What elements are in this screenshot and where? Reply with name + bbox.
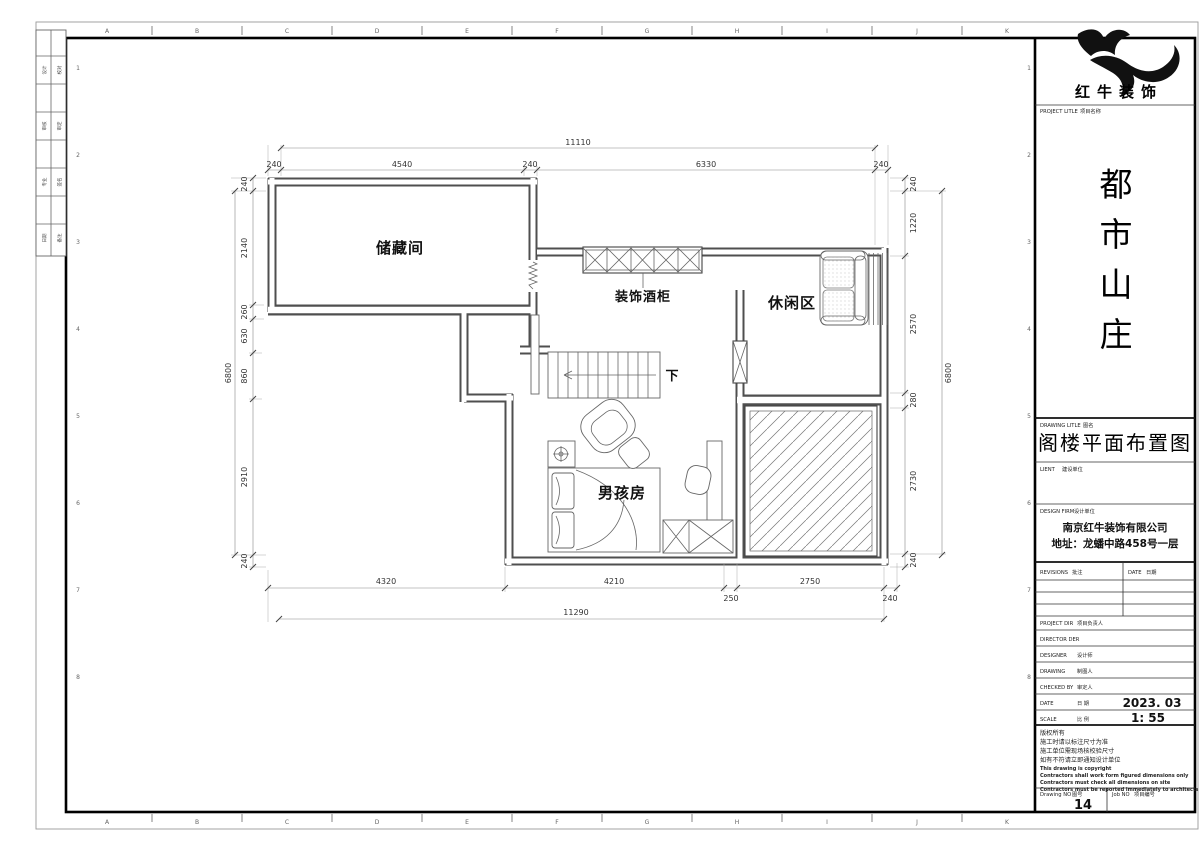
dim-label: 630 xyxy=(240,328,249,343)
note-line: Contractors must check all dimensions on… xyxy=(1040,780,1171,786)
dim-label: 280 xyxy=(909,392,918,407)
job-no-label-en: Job NO xyxy=(1111,792,1130,798)
ruler-letter: F xyxy=(555,819,559,826)
ruler-letter: J xyxy=(915,28,918,35)
note-line: This drawing is copyright xyxy=(1040,766,1112,772)
stairs-down-label: 下 xyxy=(665,369,678,384)
ruler-letter: B xyxy=(195,28,199,35)
room-label-boy: 男孩房 xyxy=(598,484,646,502)
ruler-letter: K xyxy=(1005,28,1010,35)
thin-partition xyxy=(531,315,539,394)
dim-label: 2750 xyxy=(800,577,820,586)
dim-label: 240 xyxy=(882,594,897,603)
right-ruler-numbers: 1 2 3 4 5 6 7 8 xyxy=(1027,65,1031,681)
dim-top-overall: 11110 xyxy=(565,138,590,147)
note-line: 施工单位需现场核校验尺寸 xyxy=(1040,747,1114,755)
dim-label: 860 xyxy=(240,368,249,383)
ruler-number: 4 xyxy=(1027,326,1031,333)
signoff-cell: 设计 xyxy=(41,65,48,74)
ruler-letter: H xyxy=(735,819,740,826)
row-label-cn: 设计师 xyxy=(1077,651,1093,659)
dim-left-overall: 6800 xyxy=(224,363,233,383)
wardrobe xyxy=(663,520,733,553)
firm-address: 地址：龙蟠中路458号一层 xyxy=(1052,537,1179,550)
revisions-label-cn: 批注 xyxy=(1072,568,1082,576)
date-col-label-en: DATE xyxy=(1128,570,1142,576)
ruler-number: 1 xyxy=(76,65,80,72)
job-no-label-cn: 项目编号 xyxy=(1134,790,1155,798)
ruler-letter: E xyxy=(465,28,469,35)
row-label-cn: 制图人 xyxy=(1077,667,1093,675)
signoff-cell: 专业 xyxy=(41,177,48,186)
dim-label: 1220 xyxy=(909,213,918,233)
dim-label: 2140 xyxy=(240,238,249,258)
wine-cabinet-label: 装饰酒柜 xyxy=(614,289,671,305)
dim-label: 240 xyxy=(266,160,281,169)
column-symbol xyxy=(733,341,747,383)
note-line: 施工时请以标注尺寸为准 xyxy=(1040,738,1108,746)
scale-value: 1: 55 xyxy=(1131,711,1165,725)
ruler-letter: I xyxy=(826,28,828,35)
logo-name: 红牛装饰 xyxy=(1075,83,1163,101)
project-label-cn: 项目名称 xyxy=(1080,107,1101,115)
ruler-letter: E xyxy=(465,819,469,826)
ruler-number: 2 xyxy=(1027,152,1031,159)
ruler-number: 7 xyxy=(1027,587,1031,594)
dim-label: 2730 xyxy=(909,471,918,491)
ruler-number: 5 xyxy=(76,413,80,420)
left-ruler-numbers: 1 2 3 4 5 6 7 8 xyxy=(76,65,80,681)
sofa xyxy=(820,251,868,325)
void-hatched-area xyxy=(745,406,877,556)
signoff-cell: 审核 xyxy=(41,121,48,130)
ruler-number: 8 xyxy=(1027,674,1031,681)
project-label-en: PROJECT LITLE xyxy=(1040,109,1078,115)
project-name-char: 都 xyxy=(1100,168,1133,204)
signoff-cell: 校对 xyxy=(56,65,63,74)
dim-label: 240 xyxy=(909,552,918,567)
note-line: 版权所有 xyxy=(1040,729,1065,737)
dim-label: 6330 xyxy=(696,160,716,169)
ruler-number: 1 xyxy=(1027,65,1031,72)
dim-label: 250 xyxy=(723,594,738,603)
date-value: 2023. 03 xyxy=(1123,696,1182,710)
ruler-letter: B xyxy=(195,819,199,826)
ruler-letter: D xyxy=(375,819,380,826)
ruler-letter: K xyxy=(1005,819,1010,826)
drawing-label-en: DRAWING LITLE xyxy=(1040,423,1081,429)
drawing-no-value: 14 xyxy=(1074,798,1092,813)
row-label-en: PROJECT DIR xyxy=(1040,621,1074,627)
ruler-number: 6 xyxy=(1027,500,1031,507)
ruler-letter: I xyxy=(826,819,828,826)
dim-label: 2570 xyxy=(909,314,918,334)
signoff-cell: 备注 xyxy=(56,233,63,242)
ruler-letter: C xyxy=(285,28,289,35)
dim-label: 240 xyxy=(240,176,249,191)
dim-label: 4320 xyxy=(376,577,396,586)
wine-cabinet xyxy=(583,247,702,288)
row-label-en: SCALE xyxy=(1040,717,1057,723)
drawing-label-cn: 图名 xyxy=(1083,421,1093,429)
dim-label: 240 xyxy=(873,160,888,169)
ruler-number: 7 xyxy=(76,587,80,594)
project-name-char: 山 xyxy=(1100,268,1133,304)
client-label-en: LIENT xyxy=(1040,467,1056,473)
ruler-number: 4 xyxy=(76,326,80,333)
signoff-cell: 签名 xyxy=(56,178,63,187)
floor-plan: 下 装饰酒柜 xyxy=(268,178,888,565)
bedside-table xyxy=(548,441,575,467)
dim-label: 2910 xyxy=(240,467,249,487)
title-block: 红牛装饰 PROJECT LITLE 项目名称 都 市 山 庄 DRAWING … xyxy=(1035,29,1198,813)
dim-bottom-overall: 11290 xyxy=(563,608,588,617)
ruler-letter: H xyxy=(735,28,740,35)
row-label-en: DESIGNER xyxy=(1040,653,1067,659)
ruler-number: 2 xyxy=(76,152,80,159)
ruler-letter: G xyxy=(645,28,650,35)
ruler-letter: G xyxy=(645,819,650,826)
row-label-en: DATE xyxy=(1040,701,1054,707)
dim-label: 240 xyxy=(522,160,537,169)
ruler-number: 8 xyxy=(76,674,80,681)
drawing-no-label-en: Drawing NO xyxy=(1040,792,1071,798)
ruler-number: 5 xyxy=(1027,413,1031,420)
signoff-cell: 审定 xyxy=(56,121,63,130)
dim-label: 4210 xyxy=(604,577,624,586)
row-label-en: DIRECTOR DER xyxy=(1040,637,1080,643)
bottom-ruler: A B C D E F G H I J K xyxy=(105,814,1010,826)
ruler-letter: A xyxy=(105,819,110,826)
drawing-title: 阁楼平面布置图 xyxy=(1038,432,1192,455)
revisions-label-en: REVISIONS xyxy=(1040,570,1068,576)
row-label-cn: 审定人 xyxy=(1077,683,1093,691)
dim-label: 240 xyxy=(909,176,918,191)
dim-label: 240 xyxy=(240,553,249,568)
ruler-number: 6 xyxy=(76,500,80,507)
dim-label: 260 xyxy=(240,304,249,319)
project-name-char: 市 xyxy=(1100,217,1133,254)
top-ruler: A B C D E F G H I J K xyxy=(105,26,1010,35)
ruler-letter: C xyxy=(285,819,289,826)
ruler-number: 3 xyxy=(1027,239,1031,246)
note-line: 如有不符请立即通知设计单位 xyxy=(1040,756,1120,764)
drawing-no-label-cn: 图号 xyxy=(1072,791,1082,798)
row-label-en: DRAWING xyxy=(1040,669,1065,675)
firm-name: 南京红牛装饰有限公司 xyxy=(1063,521,1168,534)
signoff-cell: 日期 xyxy=(42,233,48,242)
drawing-sheet: A B C D E F G H I J K A B C D E F G H I … xyxy=(0,0,1200,844)
ruler-letter: D xyxy=(375,28,380,35)
ruler-letter: A xyxy=(105,28,110,35)
row-label-cn: 项目负责人 xyxy=(1077,619,1103,627)
ruler-letter: J xyxy=(915,819,918,826)
stairs: 下 xyxy=(548,352,679,398)
room-label-leisure: 休闲区 xyxy=(767,294,816,312)
date-col-label-cn: 日期 xyxy=(1146,569,1156,576)
note-line: Contractors shall work form figured dime… xyxy=(1040,773,1189,779)
project-name-char: 庄 xyxy=(1100,317,1133,354)
row-label-cn: 比 例 xyxy=(1077,715,1089,723)
row-label-cn: 日 期 xyxy=(1077,700,1089,707)
opening-coil-symbol xyxy=(529,262,537,289)
cad-canvas: A B C D E F G H I J K A B C D E F G H I … xyxy=(0,0,1200,844)
client-label-cn: 建设单位 xyxy=(1062,465,1083,473)
firm-label-en: DESIGN FIRM xyxy=(1040,509,1074,515)
room-label-storage: 储藏间 xyxy=(376,239,424,257)
firm-label-cn: 设计单位 xyxy=(1074,507,1095,515)
ruler-number: 3 xyxy=(76,239,80,246)
dim-label: 4540 xyxy=(392,160,412,169)
bed xyxy=(548,468,660,552)
row-label-en: CHECKED BY xyxy=(1040,685,1074,691)
signoff-strip: 设计 校对 审核 审定 专业 签名 日期 备注 xyxy=(36,30,66,256)
dim-right-overall: 6800 xyxy=(944,363,953,383)
ruler-letter: F xyxy=(555,28,559,35)
